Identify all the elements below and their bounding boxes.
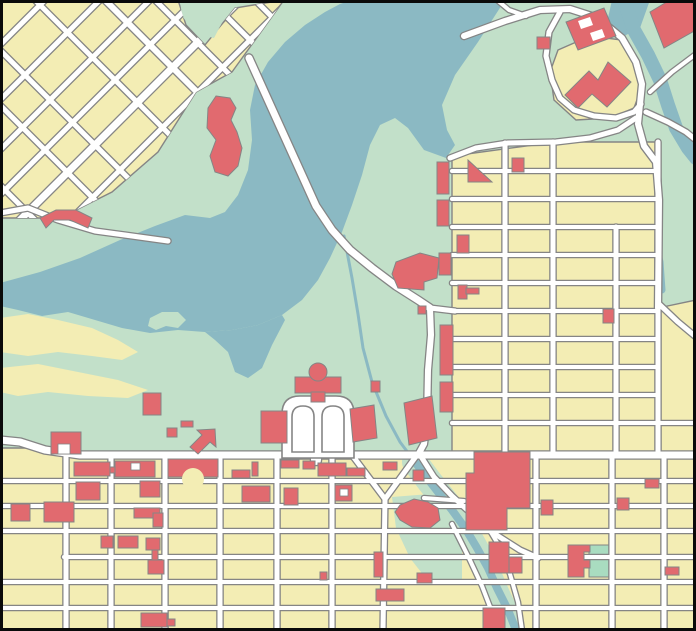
building [512, 158, 524, 172]
building [140, 481, 160, 497]
building-courtyard-hole [58, 444, 70, 454]
building [181, 421, 193, 427]
building [153, 513, 163, 527]
building [603, 309, 614, 323]
building [440, 325, 453, 375]
building [167, 619, 175, 626]
palace-plaza [282, 396, 354, 458]
building [252, 462, 258, 476]
building-courtyard-hole [131, 463, 140, 470]
building [303, 461, 315, 469]
building [261, 411, 287, 443]
building [374, 552, 383, 577]
building [141, 613, 167, 627]
building-dome [309, 363, 327, 381]
building [417, 573, 432, 583]
building [617, 498, 629, 510]
building [118, 536, 138, 548]
building [148, 560, 164, 574]
building [311, 392, 325, 402]
building-courtyard-hole [340, 489, 348, 496]
building [350, 405, 377, 442]
plaza-arch [322, 406, 344, 452]
building [383, 462, 397, 470]
building [347, 468, 365, 476]
building [404, 396, 437, 445]
building-notch [182, 468, 204, 490]
building [143, 393, 161, 415]
building [645, 479, 659, 488]
building [281, 460, 299, 468]
building [413, 470, 424, 481]
building [371, 381, 380, 392]
building [44, 502, 74, 522]
building [242, 486, 270, 502]
map-viewport[interactable] [0, 0, 696, 631]
building [318, 463, 346, 476]
plaza-arch [292, 406, 314, 452]
building [440, 382, 453, 412]
building [489, 542, 509, 573]
building [11, 504, 30, 521]
courtyard [589, 545, 611, 577]
building [457, 235, 469, 253]
building [437, 162, 449, 194]
building [439, 253, 451, 275]
building [376, 589, 404, 601]
building [232, 470, 250, 478]
city-map-svg [0, 0, 696, 631]
building [418, 306, 426, 314]
building [146, 538, 160, 550]
building [466, 288, 479, 294]
building [320, 572, 327, 580]
building [76, 482, 100, 500]
building [537, 37, 550, 49]
building [284, 488, 298, 505]
building [74, 462, 110, 476]
building [665, 567, 679, 575]
building [167, 428, 177, 437]
building [101, 536, 113, 548]
building [541, 500, 553, 515]
building [483, 608, 505, 630]
building [437, 200, 449, 226]
building [509, 557, 522, 573]
